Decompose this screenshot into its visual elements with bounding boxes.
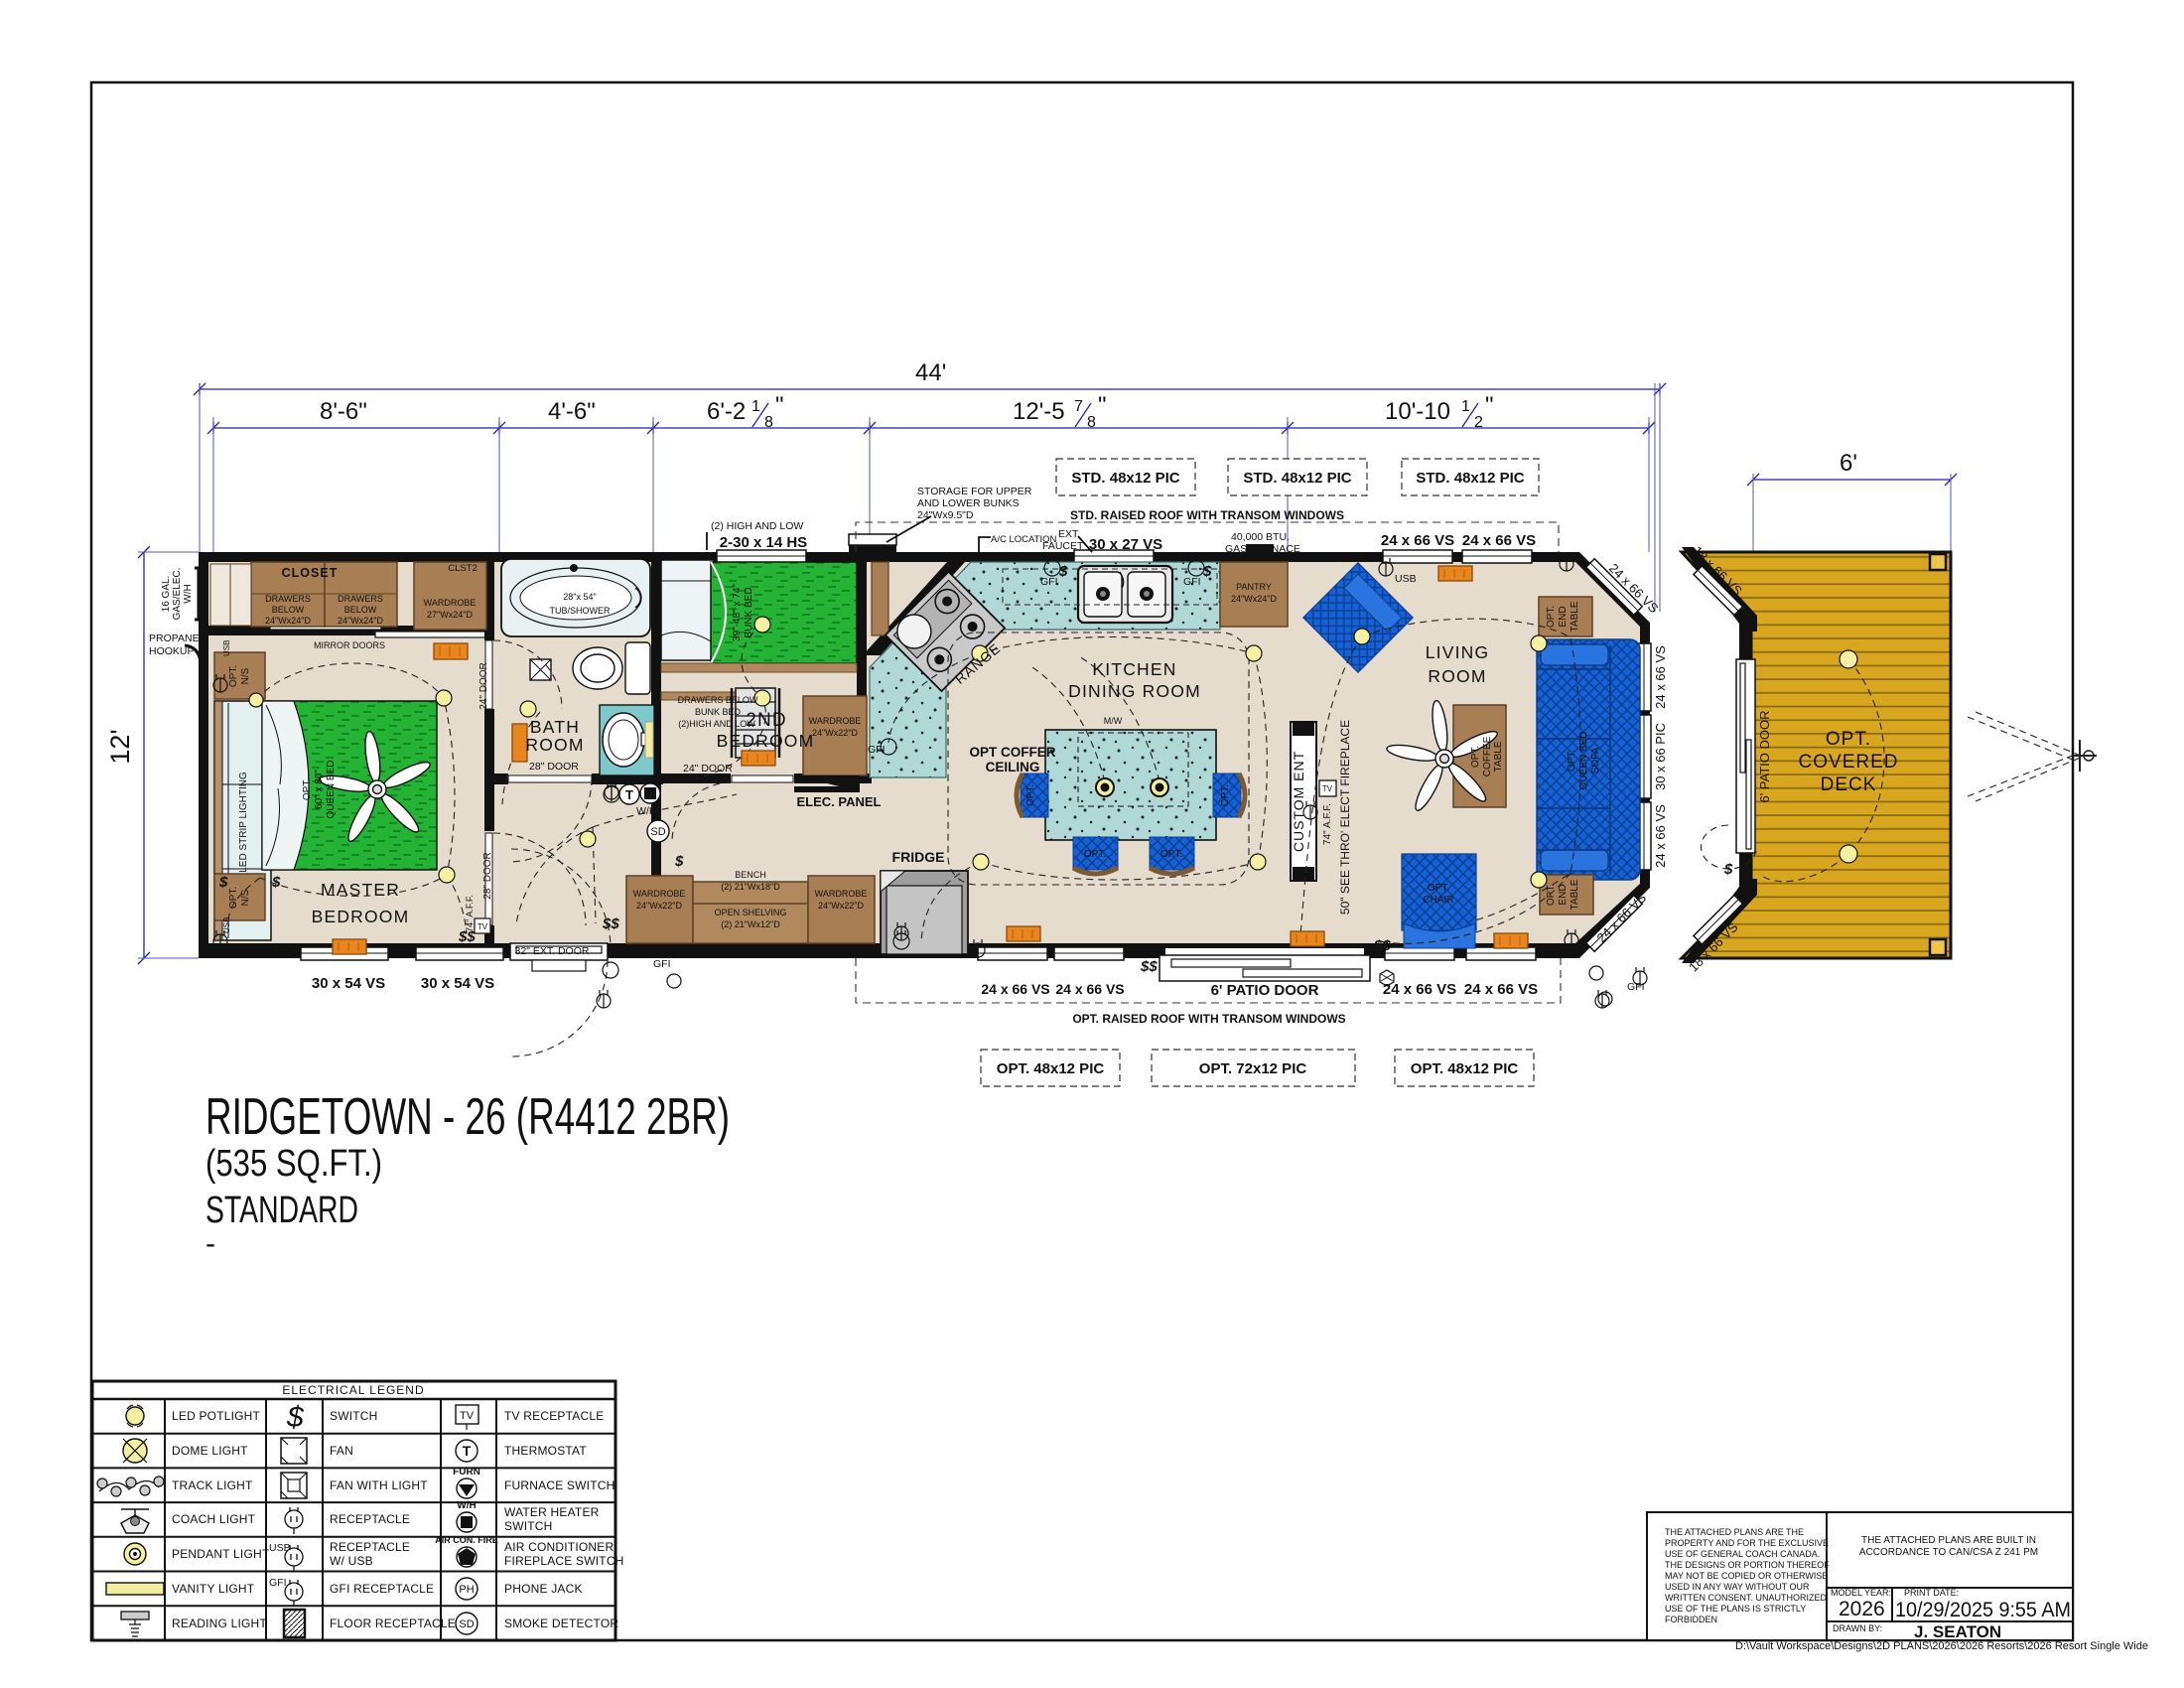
svg-text:30 x 27 VS: 30 x 27 VS — [1089, 536, 1162, 553]
svg-text:24" DOOR: 24" DOOR — [478, 662, 489, 709]
svg-text:THE ATTACHED PLANS ARE BUILT I: THE ATTACHED PLANS ARE BUILT IN — [1861, 1535, 2036, 1546]
svg-text:FAN: FAN — [330, 1444, 353, 1458]
svg-text:$: $ — [286, 1401, 305, 1434]
svg-text:USE OF THE PLANS IS STRICTLY: USE OF THE PLANS IS STRICTLY — [1665, 1604, 1806, 1614]
svg-text:STD. RAISED ROOF WITH TRANSOM: STD. RAISED ROOF WITH TRANSOM WINDOWS — [1070, 508, 1344, 522]
svg-text:6'-2: 6'-2 — [707, 398, 746, 425]
svg-text:AIR CON. FIRE: AIR CON. FIRE — [435, 1535, 498, 1545]
svg-text:74" A.F.F.: 74" A.F.F. — [465, 895, 475, 932]
svg-text:GAS FURNACE: GAS FURNACE — [1225, 543, 1300, 555]
svg-text:6' PATIO DOOR: 6' PATIO DOOR — [1211, 982, 1319, 999]
svg-text:RECEPTACLE: RECEPTACLE — [330, 1512, 410, 1526]
svg-text:PRINT DATE:: PRINT DATE: — [1904, 1588, 1959, 1598]
svg-text:DOME LIGHT: DOME LIGHT — [172, 1444, 248, 1458]
svg-text:QUEEN BED: QUEEN BED — [326, 761, 337, 819]
svg-text:N/S: N/S — [240, 667, 251, 684]
svg-text:TUB/SHOWER: TUB/SHOWER — [549, 606, 611, 616]
svg-text:39"-48" x 74": 39"-48" x 74" — [732, 584, 743, 641]
svg-text:STANDARD: STANDARD — [205, 1190, 358, 1231]
svg-text:WARDROBE: WARDROBE — [424, 598, 477, 608]
svg-text:LED POTLIGHT: LED POTLIGHT — [172, 1409, 261, 1423]
svg-text:OPT.: OPT. — [1470, 746, 1481, 768]
svg-text:WRITTEN CONSENT. UNAUTHORIZED: WRITTEN CONSENT. UNAUTHORIZED — [1665, 1593, 1827, 1603]
svg-text:USB: USB — [1395, 573, 1417, 585]
svg-text:": " — [775, 392, 784, 419]
svg-text:12'-5: 12'-5 — [1013, 398, 1065, 425]
svg-text:$: $ — [674, 853, 684, 870]
svg-text:$$: $$ — [602, 915, 619, 932]
svg-text:KITCHEN: KITCHEN — [1092, 659, 1176, 679]
svg-text:SD: SD — [459, 1618, 474, 1630]
svg-text:28" DOOR: 28" DOOR — [529, 761, 579, 773]
svg-text:DRAWERS BELOW: DRAWERS BELOW — [678, 695, 758, 705]
svg-text:24"Wx24"D: 24"Wx24"D — [1231, 594, 1277, 604]
svg-text:24"Wx22"D: 24"Wx22"D — [812, 728, 858, 738]
svg-text:24 x 66 VS: 24 x 66 VS — [1653, 804, 1668, 868]
svg-text:OPT.: OPT. — [1025, 784, 1036, 806]
svg-text:24"Wx22"D: 24"Wx22"D — [636, 901, 682, 911]
svg-text:MIRROR DOORS: MIRROR DOORS — [314, 640, 385, 650]
svg-text:EXT: EXT — [1058, 528, 1079, 540]
svg-text:PHONE JACK: PHONE JACK — [504, 1582, 583, 1596]
svg-text:2: 2 — [1474, 414, 1483, 431]
svg-text:CHAIR: CHAIR — [1423, 895, 1453, 906]
svg-text:BENCH: BENCH — [735, 870, 766, 880]
svg-text:TRACK LIGHT: TRACK LIGHT — [172, 1478, 253, 1492]
svg-text:BELOW: BELOW — [344, 605, 377, 615]
svg-text:4'-6": 4'-6" — [548, 398, 596, 425]
svg-text:24 x 66 VS: 24 x 66 VS — [1464, 981, 1538, 998]
svg-text:READING LIGHT: READING LIGHT — [172, 1617, 267, 1630]
svg-text:$$: $$ — [1373, 937, 1391, 954]
svg-text:10/29/2025 9:55 AM: 10/29/2025 9:55 AM — [1895, 1599, 2071, 1621]
svg-text:OPT.: OPT. — [228, 887, 239, 909]
svg-text:END: END — [1558, 884, 1569, 905]
svg-text:OPT.: OPT. — [1084, 849, 1106, 860]
svg-text:OPT. 48x12 PIC: OPT. 48x12 PIC — [1411, 1060, 1519, 1077]
svg-text:CEILING: CEILING — [986, 760, 1040, 774]
svg-text:1: 1 — [751, 398, 760, 415]
svg-text:OPT.: OPT. — [1160, 849, 1182, 860]
svg-text:40,000 BTU.: 40,000 BTU. — [1231, 531, 1290, 543]
svg-text:8'-6": 8'-6" — [320, 398, 367, 425]
svg-text:GFI: GFI — [269, 1577, 287, 1589]
svg-text:RECEPTACLE: RECEPTACLE — [330, 1540, 410, 1554]
svg-text:(2) 21"Wx12"D: (2) 21"Wx12"D — [721, 919, 780, 929]
svg-text:WARDROBE: WARDROBE — [809, 716, 862, 726]
svg-text:GFI: GFI — [1040, 576, 1058, 588]
svg-text:8: 8 — [764, 414, 773, 431]
svg-text:": " — [1485, 392, 1494, 419]
svg-text:OPT COFFER: OPT COFFER — [970, 745, 1056, 760]
svg-text:USE OF GENERAL COACH CANADA.: USE OF GENERAL COACH CANADA. — [1665, 1549, 1820, 1559]
svg-text:OPT.: OPT. — [1220, 784, 1231, 806]
svg-text:MODEL YEAR:: MODEL YEAR: — [1831, 1588, 1891, 1598]
svg-text:MASTER: MASTER — [321, 880, 400, 900]
svg-text:BATH: BATH — [530, 717, 580, 737]
svg-text:ELEC. PANEL: ELEC. PANEL — [797, 794, 882, 809]
svg-text:STD. 48x12 PIC: STD. 48x12 PIC — [1071, 470, 1179, 487]
svg-text:STD. 48x12 PIC: STD. 48x12 PIC — [1243, 470, 1351, 487]
svg-text:LIVING: LIVING — [1426, 642, 1490, 662]
svg-text:27"Wx24"D: 27"Wx24"D — [427, 610, 473, 620]
svg-text:J. SEATON: J. SEATON — [1914, 1622, 2001, 1641]
svg-text:PH: PH — [459, 1584, 474, 1596]
svg-text:STD. 48x12 PIC: STD. 48x12 PIC — [1416, 470, 1524, 487]
svg-text:RIDGETOWN - 26 (R4412 2BR): RIDGETOWN - 26 (R4412 2BR) — [205, 1088, 730, 1146]
svg-text:12': 12' — [105, 729, 135, 764]
svg-text:STORAGE FOR UPPER: STORAGE FOR UPPER — [917, 486, 1032, 497]
svg-text:24 x 66 VS: 24 x 66 VS — [1462, 532, 1536, 549]
svg-text:TV: TV — [1322, 784, 1333, 793]
svg-text:24"Wx22"D: 24"Wx22"D — [818, 901, 864, 911]
svg-text:TV: TV — [478, 922, 488, 931]
svg-text:DRAWERS: DRAWERS — [338, 594, 383, 604]
svg-text:PANTRY: PANTRY — [1236, 582, 1272, 592]
svg-text:$$: $$ — [1140, 958, 1158, 975]
svg-text:2026: 2026 — [1839, 1598, 1885, 1620]
svg-text:COVERED: COVERED — [1799, 752, 1899, 773]
svg-text:BELOW: BELOW — [272, 605, 305, 615]
svg-text:1: 1 — [1461, 398, 1470, 415]
svg-text:GFI: GFI — [1183, 576, 1201, 588]
svg-text:W/ USB: W/ USB — [330, 1554, 373, 1568]
svg-text:TABLE: TABLE — [1493, 741, 1504, 772]
svg-text:CLST2: CLST2 — [448, 563, 478, 574]
svg-text:SMOKE DETECTOR: SMOKE DETECTOR — [504, 1617, 618, 1630]
svg-text:VANITY LIGHT: VANITY LIGHT — [172, 1582, 255, 1596]
svg-text:(2) HIGH AND LOW: (2) HIGH AND LOW — [711, 520, 803, 532]
svg-text:24 x 66 VS: 24 x 66 VS — [1653, 645, 1668, 709]
svg-text:OPT. 72x12 PIC: OPT. 72x12 PIC — [1199, 1060, 1307, 1077]
svg-text:SWITCH: SWITCH — [330, 1409, 378, 1423]
svg-text:10'-10: 10'-10 — [1385, 398, 1450, 425]
svg-text:M/W: M/W — [1104, 716, 1123, 726]
svg-text:BEDROOM: BEDROOM — [717, 731, 815, 751]
svg-text:BEDROOM: BEDROOM — [312, 907, 410, 926]
svg-text:32" EXT. DOOR: 32" EXT. DOOR — [515, 945, 590, 957]
svg-text:74" A.F.F.: 74" A.F.F. — [1322, 803, 1333, 845]
svg-text:": " — [1098, 392, 1107, 419]
svg-text:DRAWERS: DRAWERS — [265, 594, 311, 604]
svg-text:24" DOOR: 24" DOOR — [683, 763, 733, 774]
svg-text:(2)HIGH AND LOW: (2)HIGH AND LOW — [678, 719, 755, 729]
svg-text:THE ATTACHED PLANS ARE THE: THE ATTACHED PLANS ARE THE — [1665, 1527, 1804, 1537]
svg-text:OPT. 48x12 PIC: OPT. 48x12 PIC — [997, 1060, 1105, 1077]
svg-text:AND LOWER BUNKS: AND LOWER BUNKS — [917, 497, 1020, 509]
svg-text:WARDROBE: WARDROBE — [815, 889, 868, 899]
svg-text:16 GAL.: 16 GAL. — [161, 576, 172, 613]
svg-text:TABLE: TABLE — [1570, 601, 1580, 632]
svg-text:(2) 21"Wx18"D: (2) 21"Wx18"D — [721, 882, 780, 892]
svg-text:FURN: FURN — [453, 1467, 480, 1477]
svg-text:USED IN ANY WAY WITHOUT OUR: USED IN ANY WAY WITHOUT OUR — [1665, 1582, 1810, 1592]
svg-text:DECK: DECK — [1821, 774, 1877, 795]
svg-text:SD: SD — [650, 826, 665, 838]
svg-text:2-30 x 14 HS: 2-30 x 14 HS — [720, 534, 807, 551]
svg-text:END: END — [1558, 606, 1569, 627]
svg-text:MAY NOT BE COPIED OR OTHERWISE: MAY NOT BE COPIED OR OTHERWISE — [1665, 1571, 1828, 1581]
svg-text:ACCORDANCE TO CAN/CSA Z 241 PM: ACCORDANCE TO CAN/CSA Z 241 PM — [1859, 1547, 2038, 1558]
svg-text:W/H: W/H — [457, 1500, 476, 1511]
svg-text:$: $ — [1723, 861, 1733, 878]
svg-text:COFFEE: COFFEE — [1482, 736, 1493, 776]
svg-text:OPT.: OPT. — [1428, 883, 1449, 894]
svg-text:BUNK BED: BUNK BED — [744, 587, 754, 637]
svg-text:DINING ROOM: DINING ROOM — [1068, 681, 1201, 701]
svg-text:30 x 54 VS: 30 x 54 VS — [421, 975, 494, 992]
svg-text:ROOM: ROOM — [525, 735, 584, 755]
svg-text:OPT.: OPT. — [1546, 884, 1557, 906]
svg-text:ELECTRICAL LEGEND: ELECTRICAL LEGEND — [282, 1383, 424, 1397]
svg-text:T: T — [625, 787, 633, 802]
svg-text:SWITCH: SWITCH — [504, 1519, 553, 1533]
svg-text:CUSTOM ENT: CUSTOM ENT — [1291, 751, 1306, 852]
svg-text:PENDANT LIGHT: PENDANT LIGHT — [172, 1547, 270, 1561]
svg-text:COACH LIGHT: COACH LIGHT — [172, 1512, 256, 1526]
svg-text:ROOM: ROOM — [1428, 666, 1486, 686]
svg-text:W/H: W/H — [183, 584, 194, 603]
svg-text:WATER HEATER: WATER HEATER — [504, 1505, 600, 1519]
svg-text:TV: TV — [460, 1410, 475, 1422]
svg-text:T: T — [463, 1443, 472, 1459]
svg-text:$: $ — [271, 874, 281, 891]
svg-text:(535 SQ.FT.): (535 SQ.FT.) — [205, 1143, 382, 1185]
svg-text:CLOSET: CLOSET — [282, 566, 339, 580]
svg-text:24 x 66 VS: 24 x 66 VS — [1055, 981, 1124, 997]
svg-text:SOFA: SOFA — [1590, 747, 1601, 774]
svg-text:THERMOSTAT: THERMOSTAT — [504, 1444, 587, 1458]
svg-text:AIR CONDITIONER/: AIR CONDITIONER/ — [504, 1540, 617, 1554]
svg-text:PROPERTY AND FOR THE EXCLUSIVE: PROPERTY AND FOR THE EXCLUSIVE — [1665, 1538, 1829, 1548]
svg-text:24 x 66 VS: 24 x 66 VS — [1383, 981, 1456, 998]
svg-text:24"Wx24"D: 24"Wx24"D — [338, 616, 383, 626]
svg-text:GFI: GFI — [653, 958, 671, 970]
svg-text:LED STRIP LIGHTING: LED STRIP LIGHTING — [238, 772, 249, 873]
svg-text:OPT.: OPT. — [1567, 750, 1577, 772]
svg-text:28"x 54": 28"x 54" — [563, 592, 596, 602]
svg-text:TABLE: TABLE — [1570, 879, 1580, 910]
svg-text:OPT.: OPT. — [1826, 729, 1871, 750]
svg-text:6': 6' — [1840, 450, 1857, 477]
svg-text:USB: USB — [222, 640, 231, 656]
svg-text:FAUCET: FAUCET — [1042, 540, 1084, 552]
svg-text:30 x 66 PIC: 30 x 66 PIC — [1653, 723, 1668, 790]
svg-text:60" x 80": 60" x 80" — [314, 770, 325, 809]
svg-text:FLOOR RECEPTACLE: FLOOR RECEPTACLE — [330, 1617, 456, 1630]
svg-text:24 x 66 VS: 24 x 66 VS — [1381, 532, 1454, 549]
svg-text:PROPANE: PROPANE — [149, 633, 200, 644]
svg-text:24 x 66 VS: 24 x 66 VS — [981, 981, 1049, 997]
svg-text:FAN WITH LIGHT: FAN WITH LIGHT — [330, 1478, 428, 1492]
svg-text:FORBIDDEN: FORBIDDEN — [1665, 1615, 1717, 1624]
svg-text:WARDROBE: WARDROBE — [633, 889, 686, 899]
svg-text:$: $ — [218, 874, 228, 891]
svg-text:OPT.: OPT. — [228, 665, 239, 687]
svg-text:GFI: GFI — [1627, 981, 1645, 993]
svg-text:7: 7 — [1074, 398, 1083, 415]
svg-text:6' PATIO DOOR: 6' PATIO DOOR — [1757, 710, 1772, 802]
svg-text:FIREPLACE SWITCH: FIREPLACE SWITCH — [504, 1554, 624, 1568]
svg-text:GAS/ELEC.: GAS/ELEC. — [172, 568, 183, 621]
svg-text:DRAWN BY:: DRAWN BY: — [1833, 1623, 1882, 1633]
svg-text:THE DESIGNS OR PORTION THEREOF: THE DESIGNS OR PORTION THEREOF — [1665, 1560, 1830, 1570]
svg-text:24"Wx24"D: 24"Wx24"D — [265, 616, 311, 626]
svg-text:QUEEN BED: QUEEN BED — [1578, 732, 1589, 790]
svg-text:BUNK BED: BUNK BED — [695, 707, 742, 717]
svg-text:FRIDGE: FRIDGE — [892, 849, 945, 865]
svg-text:$: $ — [1058, 563, 1068, 580]
svg-text:44': 44' — [915, 359, 946, 386]
svg-text:GFI: GFI — [868, 744, 886, 756]
svg-text:OPT.: OPT. — [1546, 606, 1557, 628]
svg-text:FURNACE SWITCH: FURNACE SWITCH — [504, 1478, 614, 1492]
svg-text:W/H: W/H — [636, 805, 656, 817]
svg-text:28" DOOR: 28" DOOR — [482, 852, 493, 899]
svg-text:-: - — [205, 1227, 215, 1260]
svg-text:OPT. RAISED ROOF WITH TRANSOM: OPT. RAISED ROOF WITH TRANSOM WINDOWS — [1072, 1012, 1345, 1026]
svg-text:GFI RECEPTACLE: GFI RECEPTACLE — [330, 1582, 434, 1596]
svg-text:50" SEE THRO' ELECT FIREPLACE: 50" SEE THRO' ELECT FIREPLACE — [1338, 720, 1352, 914]
svg-text:TV RECEPTACLE: TV RECEPTACLE — [504, 1409, 604, 1423]
svg-text:OPT.: OPT. — [302, 778, 313, 800]
svg-text:8: 8 — [1087, 414, 1096, 431]
svg-text:D:\Vault Workspace\Designs\2D: D:\Vault Workspace\Designs\2D PLANS\2026… — [1735, 1640, 2148, 1652]
svg-text:30 x 54 VS: 30 x 54 VS — [312, 975, 385, 992]
svg-text:$: $ — [1202, 563, 1212, 580]
svg-text:OPEN SHELVING: OPEN SHELVING — [715, 908, 787, 917]
svg-text:N/S: N/S — [240, 889, 251, 906]
svg-text:USB: USB — [222, 917, 231, 933]
